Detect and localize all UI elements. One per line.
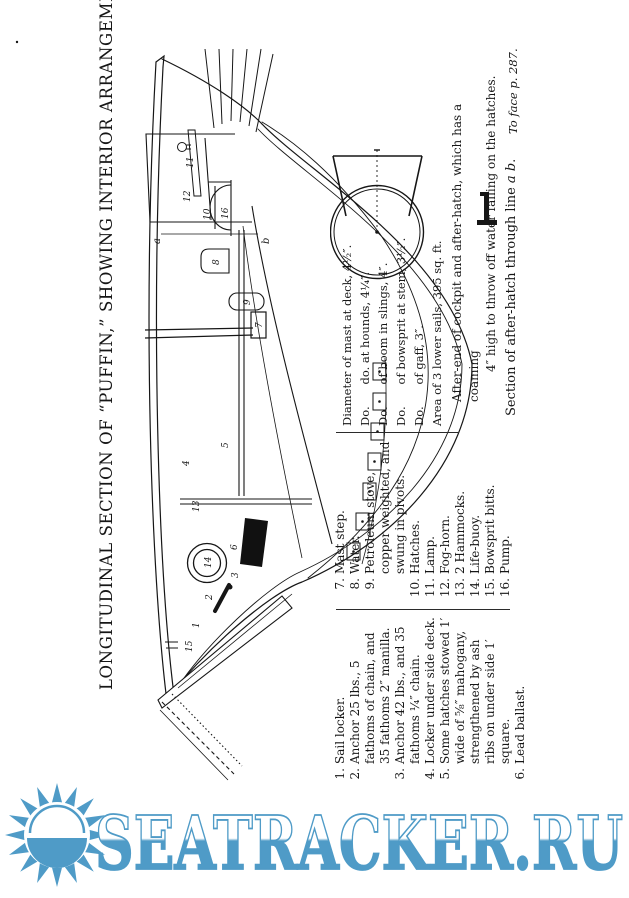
dim-line: Diameter of mast at deck, 4½″. [338,236,356,426]
cockpit-note: After-end of cockpit and after-hatch, wh… [449,57,500,402]
item-text: Lead ballast. [513,616,528,764]
list-item: 13.2 Hammocks. [453,438,468,600]
rotated-plate-content: LONGITUDINAL SECTION OF “PUFFIN,” SHOWIN… [0,0,629,894]
cockpit-note-line1: After-end of cockpit and after-hatch, wh… [449,57,483,402]
item-text: Water. [348,438,363,574]
item-number: 8. [348,578,363,600]
svg-text:12: 12 [183,190,193,202]
list-item: 2.Anchor 25 lbs., 5 fathoms of chain, an… [348,614,393,790]
item-text: Some hatches stowed 1′ wide of ⅝″ mahoga… [438,616,513,764]
spar-dimensions-block: Diameter of mast at deck, 4½″. Do. do. a… [338,236,446,426]
svg-text:13: 13 [192,500,202,512]
item-text: Sail locker. [333,616,348,764]
svg-text:8: 8 [212,259,222,265]
dim-line: Do. of boom in slings, 4″. [374,236,392,426]
mast-and-step [145,312,266,338]
item-number: 16. [498,578,513,600]
list-item: 7.Mast step. [333,438,348,600]
legend-items-1-6: 1.Sail locker. 2.Anchor 25 lbs., 5 fatho… [333,614,528,790]
list-item: 8.Water. [348,438,363,600]
to-face-note: To face p. 287. [506,48,520,134]
scanned-book-plate: { "page": { "title": "LONGITUDINAL SECTI… [0,0,629,894]
section-caption: Section of after-hatch through line a b. [504,159,519,416]
dims-column-divider [336,432,458,433]
watermark-text: SEATRACKER.RU [95,801,623,887]
item-text: Life-buoy. [468,438,483,574]
bow-and-bowsprit [158,594,292,780]
stern-rigging-lines [205,49,273,132]
svg-text:6: 6 [230,544,240,550]
section-caption-period: . [504,159,519,163]
item-number: 9. [363,578,408,600]
item-number: 10. [408,578,423,600]
list-item: 9.Petroleum stove, copper weighted, and … [363,438,408,600]
item-text: Fog-horn. [438,438,453,574]
list-item: 12.Fog-horn. [438,438,453,600]
svg-text:16: 16 [221,207,231,219]
item-number: 13. [453,578,468,600]
watermark-svg: SEATRACKER.RU [0,775,629,894]
dim-line: Do. of bowsprit at stem, 3½″. [392,236,410,426]
svg-text:4: 4 [182,460,192,467]
sun-over-sea-icon [5,783,109,887]
svg-text:5: 5 [221,442,231,448]
list-item: 16.Pump. [498,438,513,600]
list-item: 3.Anchor 42 lbs., and 35 fathoms ¼″ chai… [393,614,423,790]
anchor-figure [215,585,233,612]
watermark: SEATRACKER.RU [0,775,629,894]
item-number: 12. [438,578,453,600]
svg-text:11: 11 [186,157,196,168]
legend-column-divider [336,609,510,610]
section-line-ab: a b [152,234,272,244]
item-text: Locker under side deck. [423,616,438,764]
list-item: 6.Lead ballast. [513,614,528,790]
section-point-a-label: a [152,238,163,244]
list-item: 10.Hatches. [408,438,423,600]
dim-line: Do. do. at hounds, 4¼″. [356,236,374,426]
svg-text:1: 1 [192,622,202,628]
item-number: 14. [468,578,483,600]
item-number: 11. [423,578,438,600]
item-text: Petroleum stove, copper weighted, and sw… [363,438,408,574]
dim-line: Area of 3 lower sails, 395 sq. ft. [428,236,446,426]
list-item: 15.Bowsprit bitts. [483,438,498,600]
list-item: 4.Locker under side deck. [423,614,438,790]
item-text: Anchor 25 lbs., 5 fathoms of chain, and … [348,616,393,764]
item-text: Mast step. [333,438,348,574]
section-point-b-label: b [261,238,272,244]
list-item: 1.Sail locker. [333,614,348,790]
legend-items-7-16: 7.Mast step. 8.Water. 9.Petroleum stove,… [333,438,513,600]
dim-line: Do. of gaff, 3″. [410,236,428,426]
list-item: 14.Life-buoy. [468,438,483,600]
svg-text:2: 2 [205,594,215,601]
cockpit-note-line2: 4″ high to throw off water falling on th… [483,57,500,402]
item-text: Hatches. [408,438,423,574]
item-text: Lamp. [423,438,438,574]
item-text: Anchor 42 lbs., and 35 fathoms ¼″ chain. [393,616,423,764]
svg-text:9: 9 [243,299,253,305]
scan-speck [16,41,18,43]
lead-ballast-block [240,518,268,567]
item-number: 15. [483,578,498,600]
svg-text:7: 7 [255,322,265,328]
svg-text:3: 3 [231,572,241,578]
item-number: 7. [333,578,348,600]
item-text: Pump. [498,438,513,574]
list-item: 11.Lamp. [423,438,438,600]
longitudinal-section-drawing: a b 1 2 3 4 5 6 7 8 9 10 11 12 [0,0,629,894]
svg-text:14: 14 [204,556,214,568]
item-text: 2 Hammocks. [453,438,468,574]
list-item: 5.Some hatches stowed 1′ wide of ⅝″ maho… [438,614,513,790]
svg-text:15: 15 [185,640,195,652]
section-caption-ab: a b [504,163,519,183]
item-text: Bowsprit bitts. [483,438,498,574]
section-caption-text: Section of after-hatch through line [504,183,519,416]
svg-text:10: 10 [203,208,213,220]
